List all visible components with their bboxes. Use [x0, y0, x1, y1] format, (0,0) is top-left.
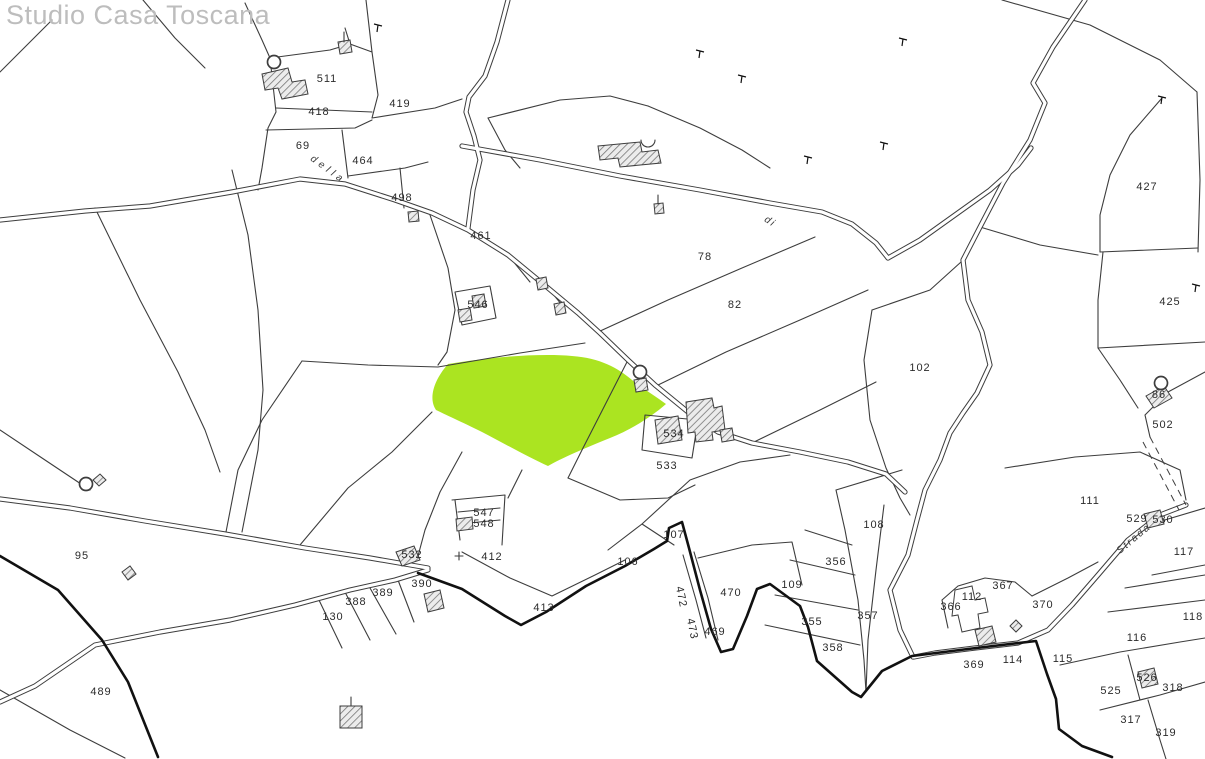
map-linework [0, 0, 1205, 759]
municipal-boundary [0, 522, 1112, 757]
roads-and-streams [0, 0, 1186, 702]
dashed-track [1143, 442, 1179, 510]
survey-ticks [374, 24, 1200, 292]
watermark: Studio Casa Toscana [6, 0, 270, 31]
buildings [93, 32, 1172, 728]
highlighted-parcel [432, 355, 666, 466]
cadastral-map: 5114184196946449846154678824274251028650… [0, 0, 1205, 759]
